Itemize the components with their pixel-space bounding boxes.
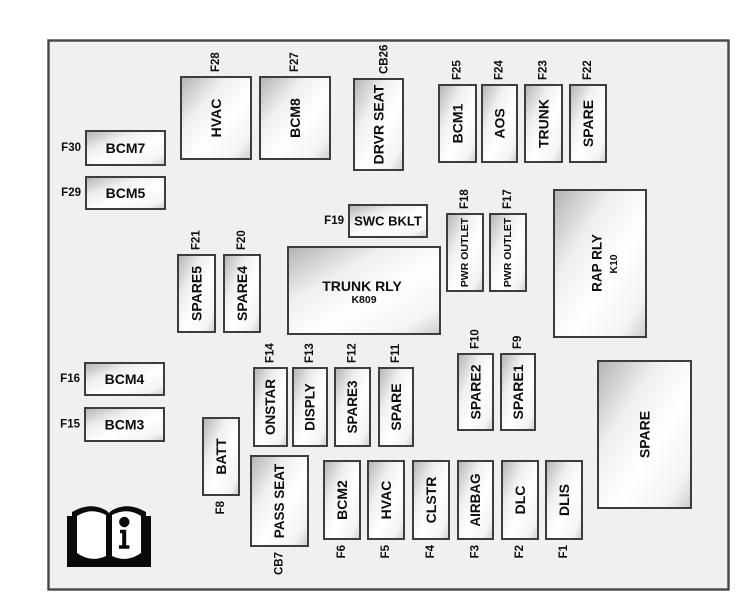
svg-text:F15: F15 bbox=[60, 419, 80, 431]
svg-text:F27: F27 bbox=[289, 52, 301, 72]
svg-text:F12: F12 bbox=[347, 343, 359, 363]
svg-text:K10: K10 bbox=[608, 254, 620, 273]
svg-text:SWC BKLT: SWC BKLT bbox=[354, 214, 422, 229]
svg-text:F29: F29 bbox=[61, 187, 81, 199]
svg-text:PASS SEAT: PASS SEAT bbox=[272, 463, 287, 538]
svg-text:SPARE1: SPARE1 bbox=[510, 364, 526, 419]
svg-text:ONSTAR: ONSTAR bbox=[263, 379, 278, 435]
svg-text:F6: F6 bbox=[336, 545, 348, 558]
svg-text:HVAC: HVAC bbox=[208, 99, 224, 138]
svg-text:PWR OUTLET: PWR OUTLET bbox=[502, 217, 514, 287]
svg-text:SPARE: SPARE bbox=[388, 383, 404, 430]
svg-text:F25: F25 bbox=[452, 60, 464, 80]
svg-text:TRUNK RLY: TRUNK RLY bbox=[322, 278, 402, 294]
svg-text:F17: F17 bbox=[502, 189, 514, 209]
svg-text:F21: F21 bbox=[191, 230, 203, 250]
svg-text:F8: F8 bbox=[215, 500, 227, 514]
svg-text:BCM2: BCM2 bbox=[334, 480, 350, 520]
svg-text:F16: F16 bbox=[60, 373, 80, 385]
svg-text:CLSTR: CLSTR bbox=[423, 477, 439, 524]
svg-text:F22: F22 bbox=[582, 60, 594, 80]
svg-text:CB26: CB26 bbox=[379, 45, 391, 74]
svg-text:F4: F4 bbox=[425, 544, 437, 558]
svg-text:F30: F30 bbox=[61, 142, 81, 154]
svg-text:SPARE: SPARE bbox=[637, 411, 653, 458]
svg-text:AIRBAG: AIRBAG bbox=[468, 473, 483, 526]
svg-text:F5: F5 bbox=[380, 544, 392, 558]
svg-text:BCM5: BCM5 bbox=[106, 185, 146, 201]
svg-text:BCM1: BCM1 bbox=[450, 103, 466, 143]
svg-text:F23: F23 bbox=[538, 60, 550, 80]
svg-text:RAP RLY: RAP RLY bbox=[590, 234, 605, 292]
svg-text:DLC: DLC bbox=[512, 486, 528, 515]
svg-text:F10: F10 bbox=[470, 329, 482, 349]
svg-text:PWR OUTLET: PWR OUTLET bbox=[459, 217, 471, 287]
svg-text:SPARE3: SPARE3 bbox=[345, 380, 360, 434]
svg-text:F14: F14 bbox=[265, 343, 277, 363]
svg-text:DLIS: DLIS bbox=[556, 484, 572, 516]
svg-text:F3: F3 bbox=[470, 545, 482, 558]
svg-text:F28: F28 bbox=[210, 52, 222, 72]
svg-text:F20: F20 bbox=[236, 230, 248, 250]
svg-text:F2: F2 bbox=[514, 545, 526, 558]
svg-text:DISPLY: DISPLY bbox=[303, 383, 318, 431]
svg-text:F13: F13 bbox=[304, 343, 316, 363]
svg-text:HVAC: HVAC bbox=[378, 481, 394, 520]
svg-text:SPARE: SPARE bbox=[580, 100, 596, 147]
svg-text:K809: K809 bbox=[351, 294, 376, 306]
svg-text:SPARE2: SPARE2 bbox=[468, 364, 484, 419]
svg-text:F19: F19 bbox=[324, 215, 344, 227]
svg-text:CB7: CB7 bbox=[274, 552, 286, 575]
svg-text:BCM4: BCM4 bbox=[105, 371, 145, 387]
svg-text:F1: F1 bbox=[558, 544, 570, 558]
svg-text:DRVR SEAT: DRVR SEAT bbox=[371, 84, 387, 164]
svg-text:BCM3: BCM3 bbox=[105, 417, 145, 433]
svg-text:F24: F24 bbox=[494, 60, 506, 80]
svg-text:BCM7: BCM7 bbox=[106, 140, 146, 156]
svg-text:AOS: AOS bbox=[492, 108, 508, 138]
svg-text:SPARE5: SPARE5 bbox=[189, 266, 205, 321]
svg-text:BATT: BATT bbox=[213, 438, 229, 475]
svg-text:F11: F11 bbox=[390, 343, 402, 363]
svg-text:SPARE4: SPARE4 bbox=[234, 266, 250, 321]
svg-text:BCM8: BCM8 bbox=[287, 98, 303, 138]
svg-text:TRUNK: TRUNK bbox=[536, 99, 552, 148]
svg-text:F9: F9 bbox=[512, 336, 524, 349]
svg-text:F18: F18 bbox=[459, 189, 471, 209]
